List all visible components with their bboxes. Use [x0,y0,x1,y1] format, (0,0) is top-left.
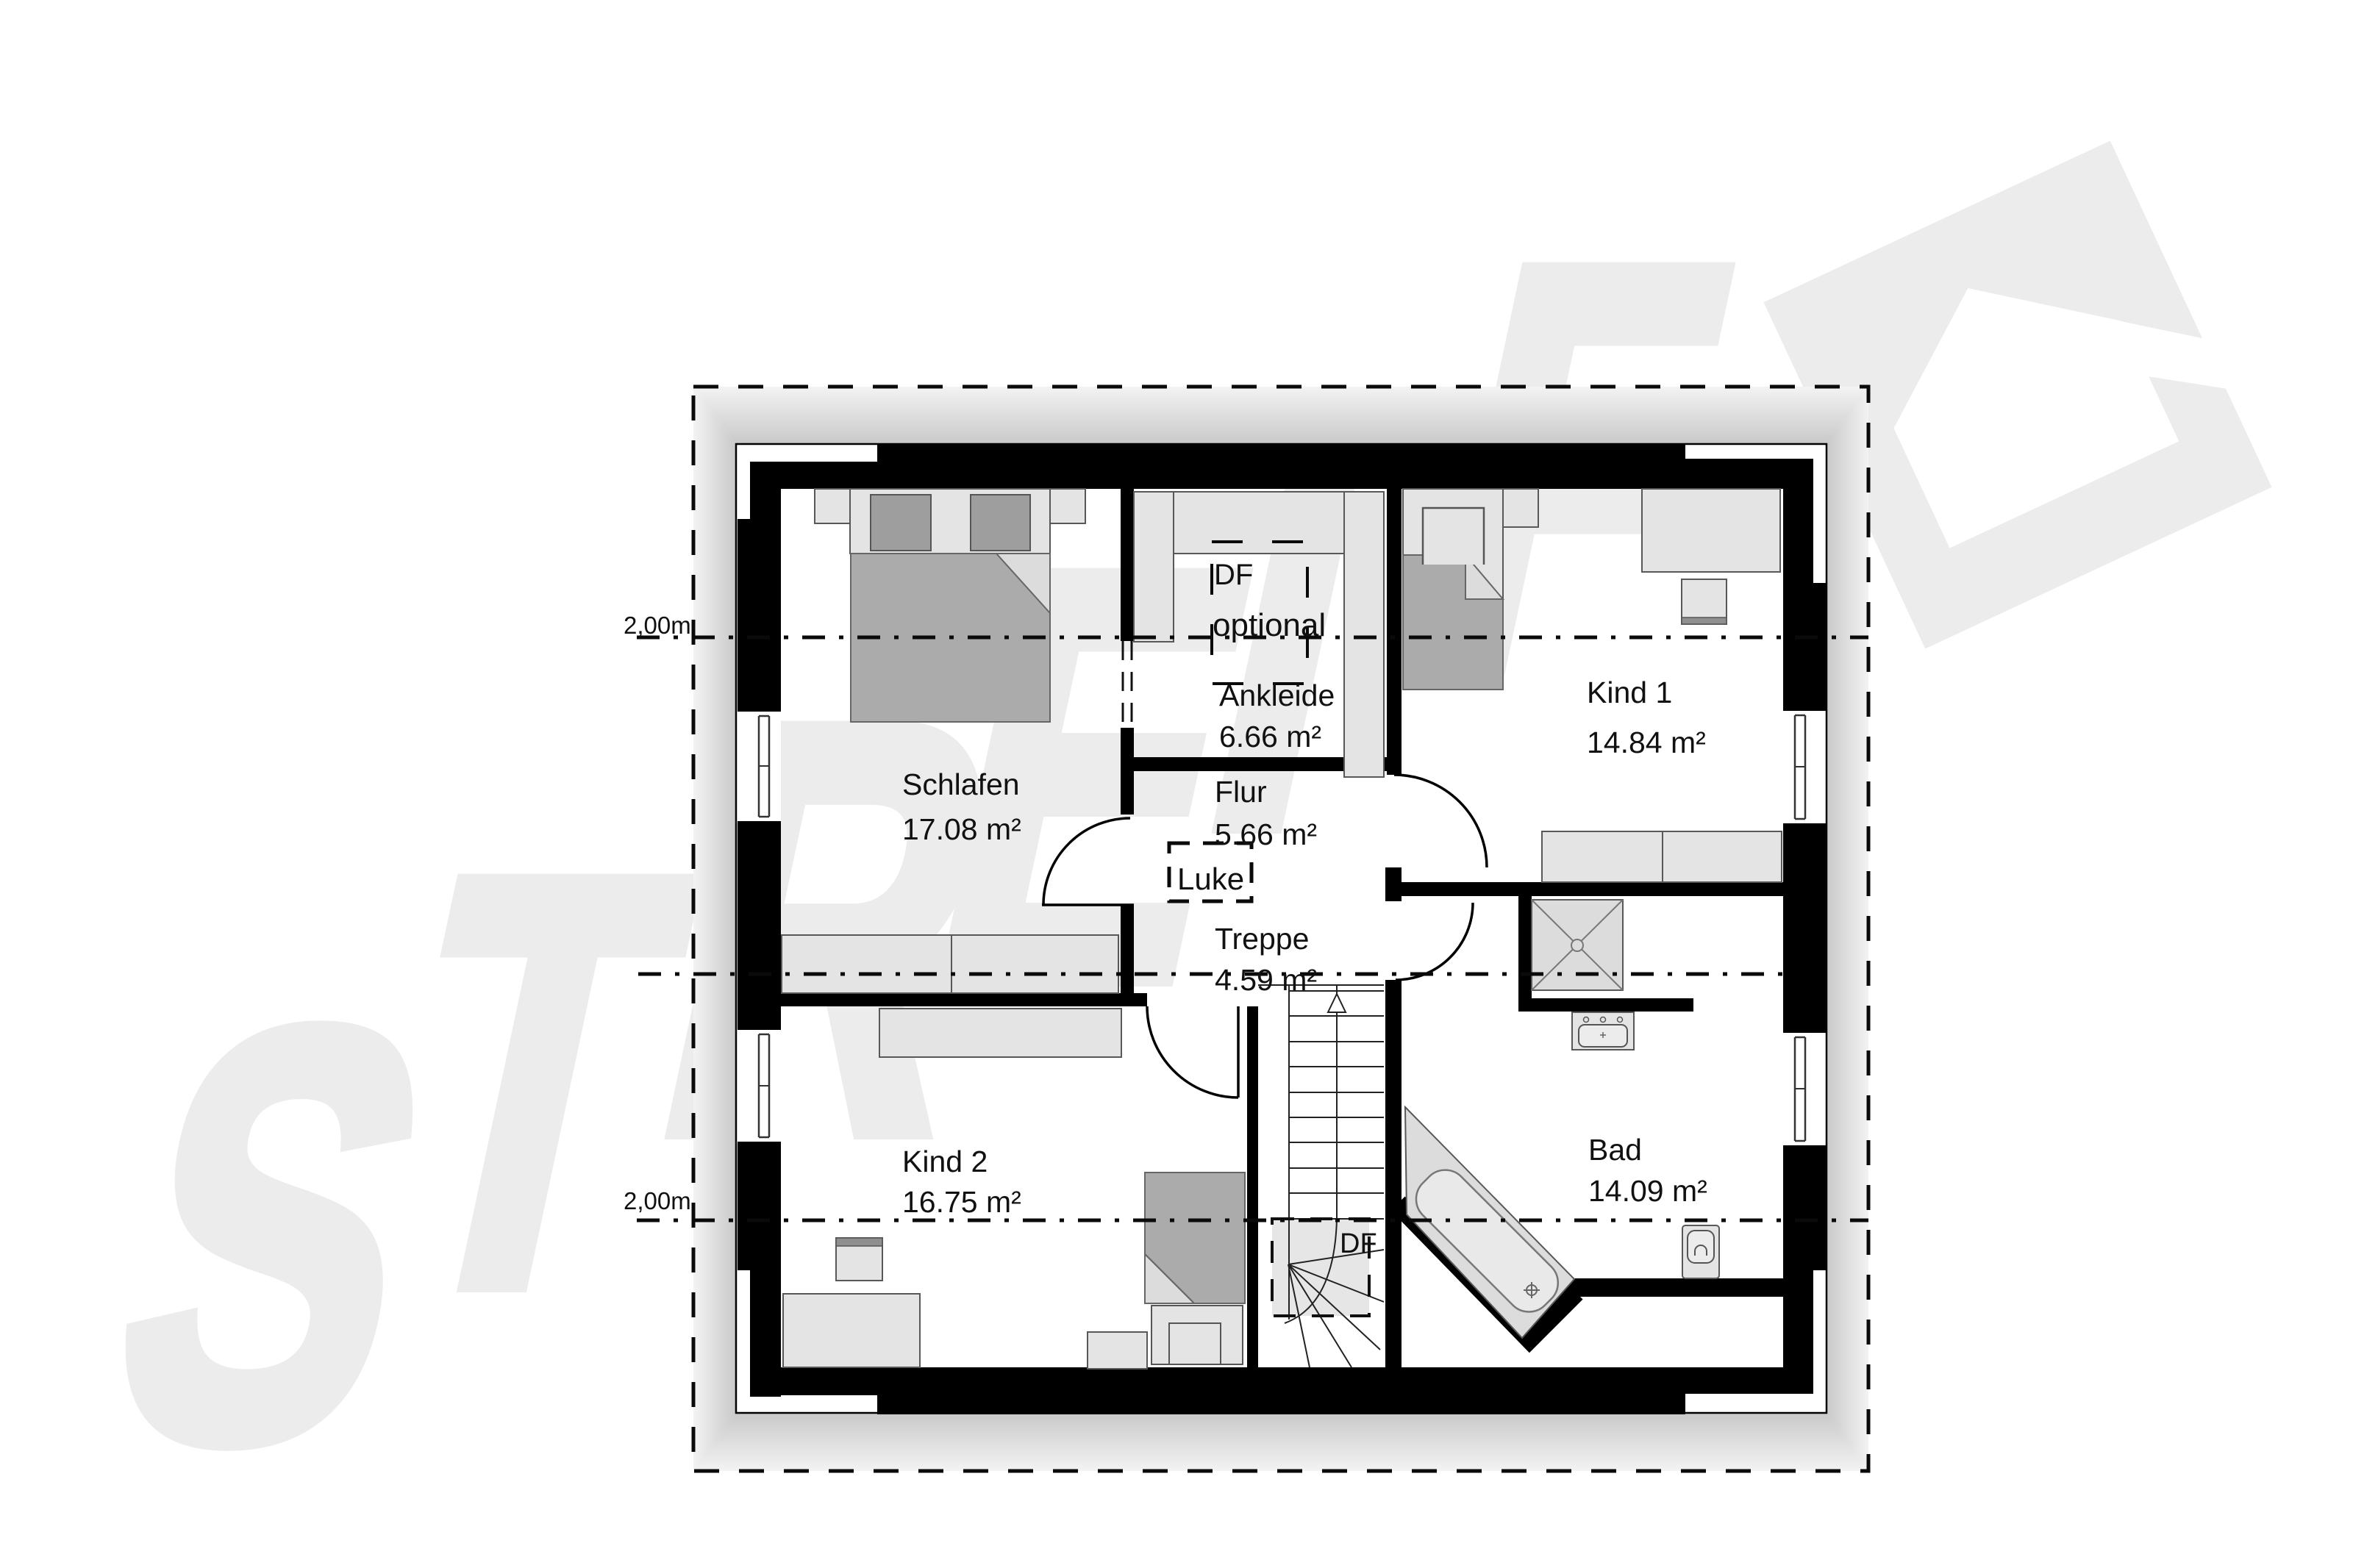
svg-text:DF: DF [1214,559,1253,591]
svg-text:Kind 1: Kind 1 [1587,676,1672,709]
svg-text:16.75 m²: 16.75 m² [902,1185,1021,1219]
svg-text:5.66 m²: 5.66 m² [1215,817,1317,851]
svg-text:6.66 m²: 6.66 m² [1219,720,1321,753]
svg-text:14.09 m²: 14.09 m² [1588,1174,1707,1208]
svg-text:2,00m: 2,00m [624,1187,691,1214]
svg-text:2,00m: 2,00m [624,612,691,639]
svg-text:Luke: Luke [1177,862,1244,896]
svg-text:Flur: Flur [1215,775,1267,809]
svg-text:Bad: Bad [1588,1133,1642,1167]
svg-text:4.59 m²: 4.59 m² [1215,963,1317,997]
svg-text:14.84 m²: 14.84 m² [1587,726,1706,759]
svg-text:Treppe: Treppe [1215,922,1309,956]
svg-text:Schlafen: Schlafen [902,767,1020,801]
svg-text:optional: optional [1213,607,1326,643]
svg-text:DF: DF [1340,1228,1377,1259]
svg-text:Kind 2: Kind 2 [902,1145,988,1178]
svg-text:Ankleide: Ankleide [1219,679,1335,712]
svg-text:17.08 m²: 17.08 m² [902,812,1021,846]
